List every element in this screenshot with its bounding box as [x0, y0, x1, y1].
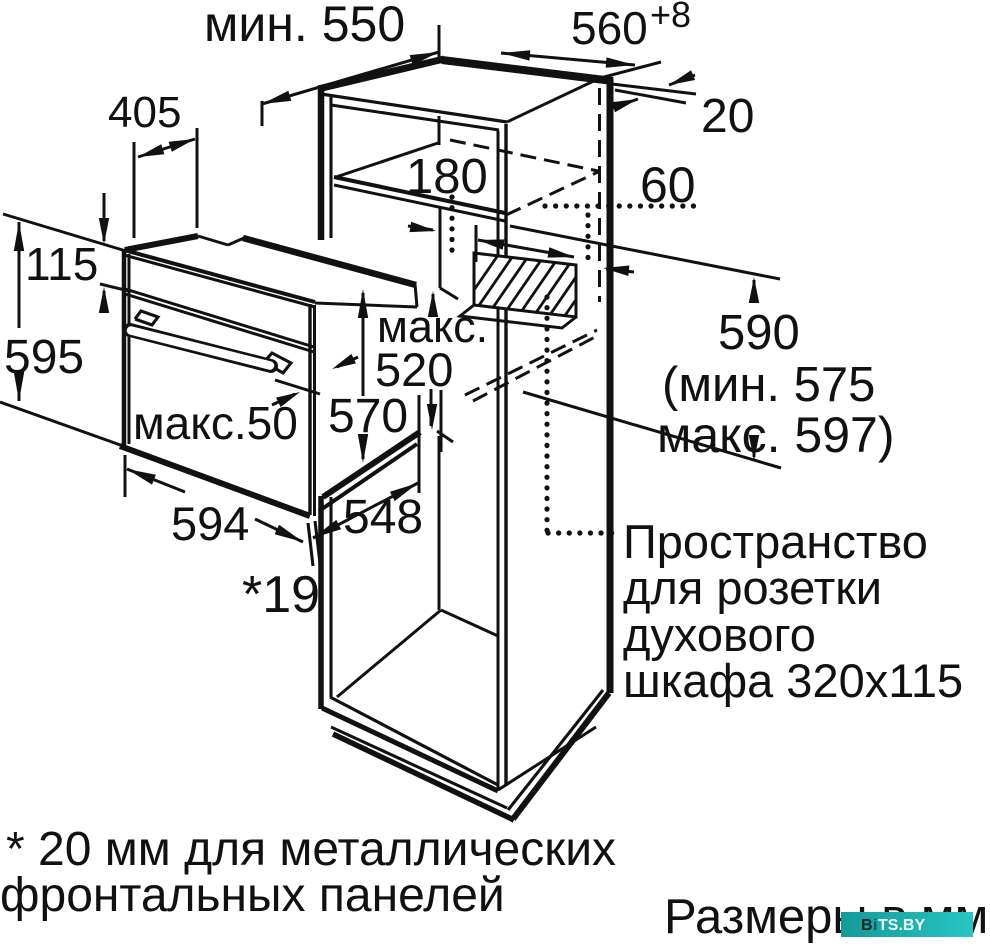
svg-text:шкафа 320x115: шкафа 320x115 — [623, 654, 963, 707]
svg-text:560: 560 — [571, 2, 648, 54]
svg-text:20: 20 — [701, 90, 754, 143]
svg-text:595: 595 — [4, 331, 84, 384]
svg-text:594: 594 — [171, 497, 249, 550]
svg-text:фронтальных панелей: фронтальных панелей — [0, 869, 505, 922]
svg-text:180: 180 — [406, 150, 488, 204]
svg-text:+8: +8 — [650, 0, 691, 35]
svg-text:для розетки: для розетки — [623, 561, 882, 614]
svg-text:макс. 597): макс. 597) — [657, 407, 894, 463]
svg-text:590: 590 — [718, 306, 800, 360]
svg-text:520: 520 — [375, 343, 453, 396]
svg-text:*19: *19 — [242, 566, 320, 624]
svg-text:405: 405 — [108, 88, 181, 137]
svg-text:i: i — [873, 917, 877, 934]
svg-text:60: 60 — [640, 157, 696, 213]
svg-text:мин. 550: мин. 550 — [204, 0, 405, 52]
svg-text:(мин. 575: (мин. 575 — [662, 358, 875, 412]
svg-text:548: 548 — [343, 491, 423, 544]
svg-text:TS.BY: TS.BY — [878, 917, 925, 934]
svg-text:570: 570 — [328, 390, 408, 443]
svg-text:B: B — [861, 917, 873, 934]
svg-text:115: 115 — [25, 238, 98, 290]
svg-text:макс.50: макс.50 — [133, 397, 298, 449]
